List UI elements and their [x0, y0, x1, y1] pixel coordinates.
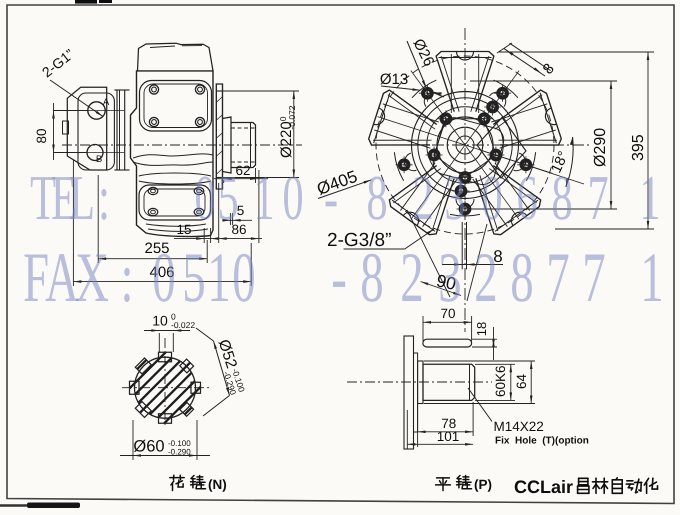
- svg-text:Ø60: Ø60: [133, 438, 164, 456]
- svg-text:A: A: [103, 97, 110, 108]
- svg-text:5: 5: [217, 162, 238, 233]
- svg-text:CCLair: CCLair: [514, 477, 573, 497]
- svg-text:8: 8: [551, 162, 572, 233]
- svg-text:0: 0: [152, 239, 175, 317]
- svg-text:1: 1: [639, 162, 660, 233]
- svg-text:0: 0: [194, 162, 215, 233]
- svg-text:8: 8: [510, 239, 533, 317]
- svg-text::: :: [98, 162, 110, 233]
- svg-text:1: 1: [207, 239, 230, 317]
- svg-text:3: 3: [438, 239, 461, 317]
- svg-text:5: 5: [182, 239, 205, 317]
- svg-text:2: 2: [412, 162, 433, 233]
- svg-text:-: -: [331, 239, 347, 317]
- svg-text:7: 7: [546, 239, 569, 317]
- svg-text:-0.290: -0.290: [168, 448, 191, 457]
- svg-text:0: 0: [282, 162, 303, 233]
- svg-text:18: 18: [474, 322, 489, 336]
- svg-text:M14X22: M14X22: [494, 419, 544, 434]
- svg-text:3: 3: [444, 162, 465, 233]
- svg-text:60K6: 60K6: [493, 365, 508, 397]
- svg-text:15: 15: [176, 222, 191, 237]
- svg-text:1: 1: [253, 162, 274, 233]
- svg-text:(N): (N): [208, 477, 227, 492]
- svg-text:-: -: [324, 162, 338, 233]
- svg-text:7: 7: [582, 239, 605, 317]
- svg-text:2: 2: [474, 239, 497, 317]
- svg-text:A: A: [45, 239, 79, 317]
- svg-text:80: 80: [34, 128, 49, 143]
- svg-text:101: 101: [437, 429, 460, 444]
- svg-text:-0.022: -0.022: [171, 320, 195, 330]
- svg-text:0: 0: [481, 162, 502, 233]
- svg-text:8: 8: [366, 162, 387, 233]
- svg-text:Ø13: Ø13: [380, 71, 408, 88]
- svg-text:395: 395: [630, 134, 647, 161]
- svg-text::: :: [120, 239, 133, 317]
- svg-text:6: 6: [516, 162, 537, 233]
- svg-text:1: 1: [640, 239, 663, 317]
- svg-text:2: 2: [400, 239, 423, 317]
- svg-text:8: 8: [360, 239, 383, 317]
- svg-text:X: X: [75, 239, 109, 317]
- svg-text:L: L: [69, 162, 95, 233]
- svg-text:Fix Hole (T)(option: Fix Hole (T)(option: [495, 436, 589, 447]
- svg-text:7: 7: [587, 162, 608, 233]
- svg-text:0: 0: [232, 239, 255, 317]
- svg-text:(P): (P): [474, 477, 492, 492]
- svg-text:64: 64: [514, 373, 529, 389]
